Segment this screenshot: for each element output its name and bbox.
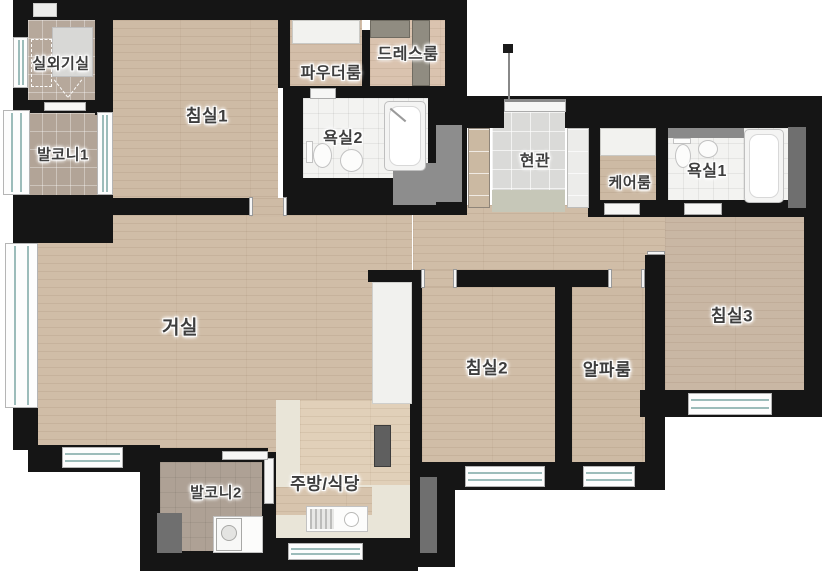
refrigerator	[374, 425, 391, 467]
window	[688, 393, 772, 415]
wall	[656, 122, 668, 212]
door-jamb	[283, 197, 287, 216]
vanity-counter	[292, 20, 360, 44]
kitchen-island	[372, 282, 412, 404]
window	[5, 243, 38, 408]
room-label-alpha-room: 알파룸	[583, 356, 631, 381]
shoe-cabinet	[468, 128, 490, 208]
utility-zone	[436, 125, 462, 202]
sink-bowl	[344, 512, 359, 527]
room-label-kitchen-dining: 주방/식당	[290, 470, 360, 495]
door-jamb	[453, 269, 457, 288]
entrance-door-marker-head	[503, 44, 513, 53]
door-opening-bedroom-2	[424, 270, 455, 287]
room-label-care-room: 케어룸	[609, 172, 652, 193]
room-label-bathroom-1: 욕실1	[687, 157, 727, 181]
wall	[95, 18, 113, 115]
bathroom-counter	[668, 128, 744, 138]
window	[3, 110, 30, 195]
door-jamb	[647, 251, 665, 255]
room-label-powder-room: 파우더룸	[301, 59, 362, 83]
wardrobe	[600, 128, 656, 156]
door-jamb	[608, 269, 612, 288]
room-label-outdoor-unit-room: 실외기실	[32, 53, 89, 74]
washing-machine-drum	[221, 525, 237, 541]
wall	[362, 30, 370, 88]
door-opening-bedroom-1	[251, 198, 285, 217]
room-label-dress-room: 드레스룸	[378, 40, 439, 64]
sink	[698, 140, 718, 158]
wall	[95, 198, 253, 215]
entrance-door-marker	[508, 52, 510, 100]
entrance-mat	[492, 190, 565, 212]
vent-grille	[33, 3, 57, 17]
door-balcony-2	[264, 458, 274, 504]
wardrobe	[370, 20, 410, 38]
sink	[340, 149, 363, 172]
door-jamb	[421, 269, 425, 288]
window	[62, 447, 123, 468]
duct	[420, 477, 437, 553]
room-label-bedroom-2: 침실2	[466, 354, 508, 379]
room-label-bathroom-2: 욕실2	[323, 124, 363, 148]
door-bathroom-1	[684, 203, 722, 215]
door-outdoor-unit-room	[44, 102, 86, 111]
window	[583, 466, 635, 487]
room-label-balcony-2: 발코니2	[190, 482, 242, 503]
wall	[140, 551, 272, 571]
wall	[13, 0, 460, 20]
toilet-tank	[306, 141, 313, 163]
room-label-bedroom-3: 침실3	[711, 302, 753, 327]
wall	[278, 18, 290, 88]
duct	[788, 127, 806, 208]
duct	[157, 513, 182, 553]
closet	[567, 128, 589, 208]
window	[13, 37, 28, 88]
door-opening-alpha-room	[611, 270, 643, 287]
room-label-balcony-1: 발코니1	[37, 144, 89, 165]
wall	[588, 110, 600, 213]
door-balcony-2-top	[222, 451, 268, 460]
bathtub	[744, 129, 784, 203]
entrance-door	[504, 99, 566, 112]
wall	[13, 408, 38, 450]
room-label-bedroom-1: 침실1	[186, 102, 228, 127]
wall	[445, 0, 467, 100]
window	[97, 112, 113, 195]
cooktop	[310, 509, 334, 529]
door-jamb	[641, 269, 645, 288]
wall	[555, 270, 572, 470]
apartment-floor-plan: 실외기실 발코니1 침실1 파우더룸 드레스룸 욕실2 현관 케어룸 욕실1 거…	[0, 0, 833, 571]
window	[465, 466, 545, 487]
wall	[368, 270, 413, 282]
bathtub	[384, 101, 426, 171]
door-care-room	[604, 203, 640, 215]
room-label-entrance: 현관	[520, 147, 550, 171]
wall	[804, 96, 822, 417]
door-jamb	[249, 197, 253, 216]
room-label-living-room: 거실	[162, 313, 198, 340]
door-bathroom-2	[310, 88, 336, 99]
wall	[645, 255, 665, 395]
window	[288, 543, 363, 560]
wall	[565, 96, 822, 128]
